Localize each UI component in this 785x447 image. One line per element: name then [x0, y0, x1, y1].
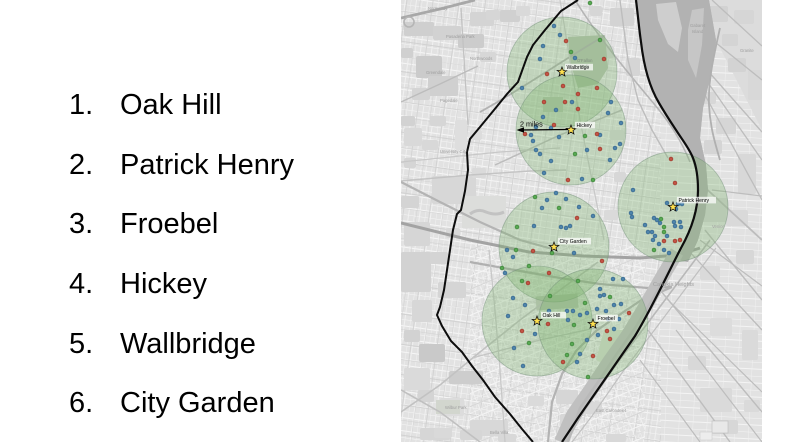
svg-text:O'Fallon: O'Fallon [577, 58, 593, 63]
svg-text:University City: University City [440, 149, 468, 154]
svg-text:Island: Island [692, 29, 704, 34]
svg-text:Greendale: Greendale [426, 70, 446, 75]
svg-text:East Carondelet: East Carondelet [596, 408, 627, 413]
svg-text:Normandy: Normandy [428, 6, 448, 11]
svg-text:2 miles: 2 miles [520, 120, 543, 129]
svg-text:Froebel: Froebel [598, 316, 615, 322]
svg-text:Pasadena Park: Pasadena Park [446, 34, 476, 39]
svg-text:Granite: Granite [740, 48, 754, 53]
svg-text:Park: Park [580, 64, 590, 69]
svg-text:Bella Villa: Bella Villa [490, 430, 509, 435]
svg-text:Cahokia Heights: Cahokia Heights [653, 282, 694, 288]
svg-text:Wilbur Park: Wilbur Park [445, 405, 468, 410]
svg-text:Hickey: Hickey [577, 123, 593, 129]
svg-text:Patrick Henry: Patrick Henry [679, 198, 710, 204]
svg-text:City Garden: City Garden [560, 239, 587, 245]
svg-text:Northwoods: Northwoods [470, 56, 492, 61]
svg-text:Venice: Venice [712, 224, 725, 229]
svg-text:Pagedale: Pagedale [440, 98, 458, 103]
svg-text:Gabaret: Gabaret [690, 23, 706, 28]
svg-text:Oak Hill: Oak Hill [543, 313, 561, 319]
